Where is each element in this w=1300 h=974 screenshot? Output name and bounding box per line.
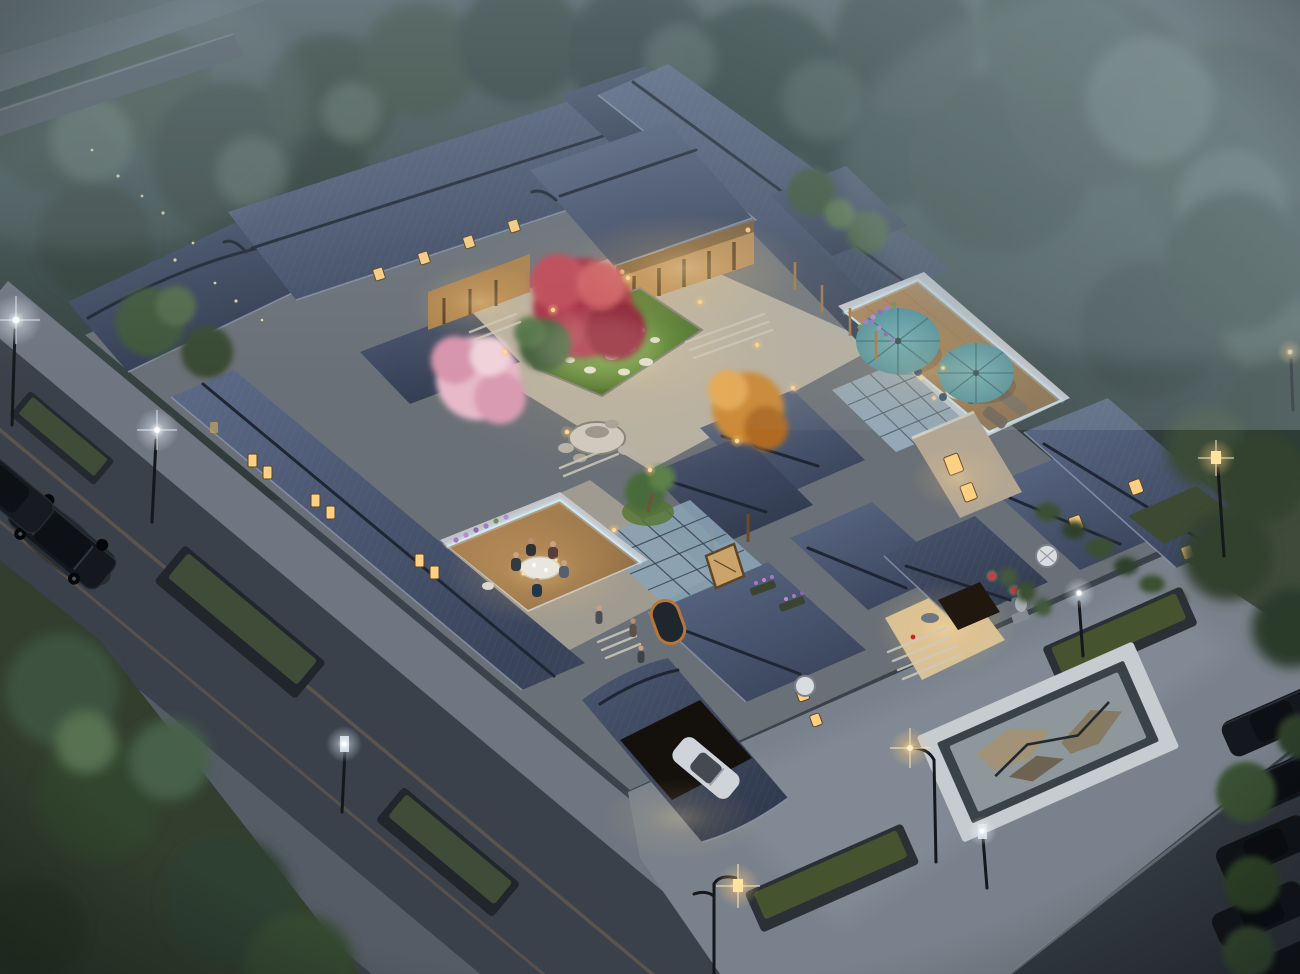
architectural-rendering — [0, 0, 1300, 974]
scene-canvas — [0, 0, 1300, 974]
vignette — [0, 0, 1300, 974]
